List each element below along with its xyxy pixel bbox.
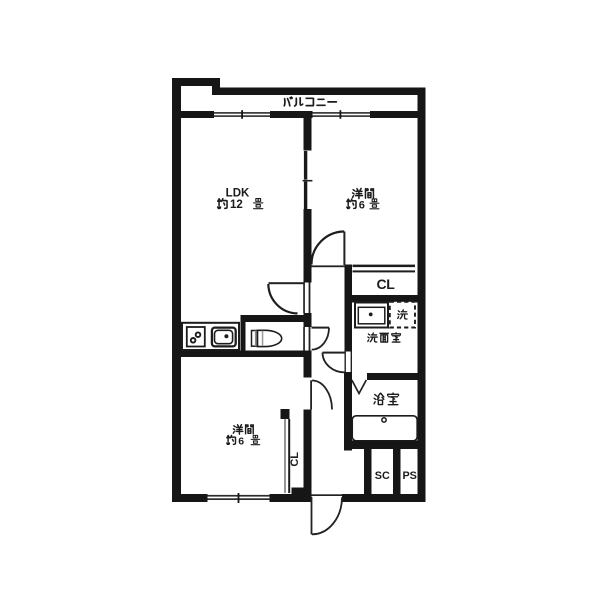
svg-text:6: 6: [359, 199, 365, 211]
svg-text:SC: SC: [375, 470, 390, 482]
svg-text:6: 6: [238, 436, 244, 448]
svg-text:CL: CL: [289, 452, 301, 467]
svg-text:LDK: LDK: [226, 188, 250, 200]
svg-text:CL: CL: [376, 276, 395, 292]
svg-text:12: 12: [230, 199, 243, 211]
svg-text:PS: PS: [402, 470, 416, 482]
